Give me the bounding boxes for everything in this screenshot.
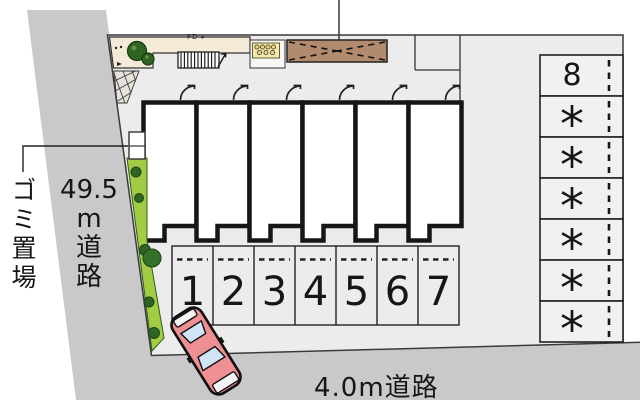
parking-space-number: 7 — [418, 264, 459, 320]
unit — [197, 103, 250, 241]
stairs-icon — [178, 52, 226, 68]
unit — [409, 103, 462, 241]
bush-icon — [144, 297, 154, 307]
parking-space-number: 4 — [295, 264, 336, 320]
left-road-width-label: 49.5 m 道 路 — [56, 176, 122, 292]
unit — [356, 103, 409, 241]
road-width-unit: m — [56, 205, 122, 234]
road-width-value: 49.5 — [56, 176, 122, 205]
parking-space-number: 1 — [172, 264, 213, 320]
unit — [250, 103, 303, 241]
walkway-dot — [120, 46, 122, 48]
bottom-road-width-label: 4.0m道路 — [314, 367, 439, 400]
planter-box — [250, 40, 285, 68]
bush-icon — [131, 167, 141, 177]
unit — [303, 103, 356, 241]
site-plan: FD ▸ ゴミ置場 49.5 m 道 路 4.0m道路 1 2 3 4 5 6 … — [0, 0, 640, 400]
road-edge-line — [623, 342, 640, 343]
parking-space-number: 5 — [336, 264, 377, 320]
unit — [144, 103, 197, 241]
building-units — [144, 103, 462, 241]
walkway-fd-mark: FD ▸ — [187, 33, 206, 41]
bush-icon — [149, 328, 160, 339]
bicycle-port — [287, 0, 387, 62]
bush-icon — [135, 194, 144, 203]
road-kanji: 道 — [56, 234, 122, 263]
parking-space-number: 3 — [254, 264, 295, 320]
garbage-area-label: ゴミ置場 — [9, 177, 36, 293]
stall-asterisk: * — [540, 310, 604, 351]
walkway-dot — [115, 47, 117, 49]
parking-space-number: 2 — [213, 264, 254, 320]
road-kanji: 路 — [56, 263, 122, 292]
parking-space-number: 6 — [377, 264, 418, 320]
tree-icon — [143, 249, 161, 267]
stall-number: 8 — [540, 55, 604, 96]
